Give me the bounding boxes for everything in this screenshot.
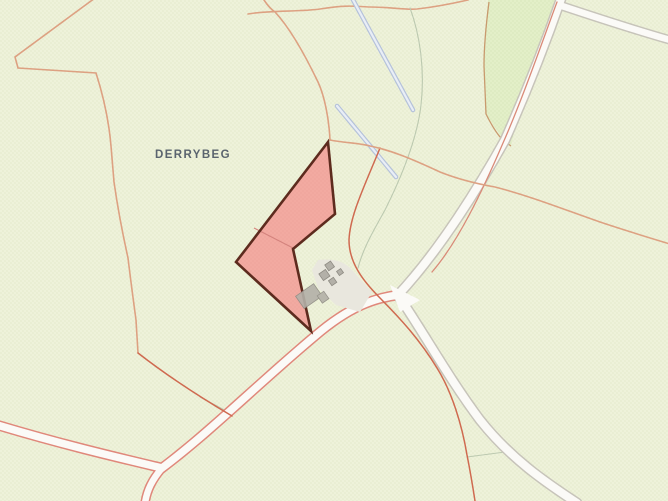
townland-label: DERRYBEG bbox=[155, 149, 231, 161]
ground-stipple bbox=[0, 0, 668, 501]
map-canvas[interactable]: DERRYBEG bbox=[0, 0, 668, 501]
